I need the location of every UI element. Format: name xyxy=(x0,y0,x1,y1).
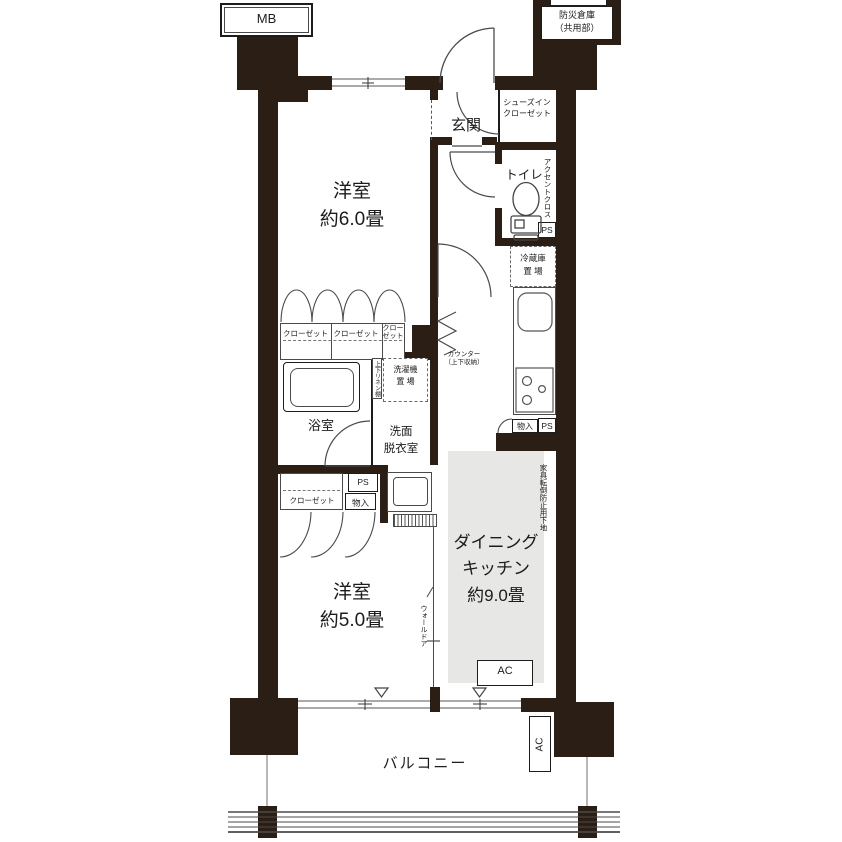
hall-dk-door xyxy=(438,244,491,297)
wall-hall-west-mid xyxy=(430,140,438,325)
window-dk xyxy=(440,701,521,708)
opening-marker-bedroom5 xyxy=(375,688,388,697)
closet-label-1: クローゼット xyxy=(281,328,330,339)
balcony-label: バルコニー xyxy=(375,752,475,773)
window-bedroom5-mark xyxy=(358,699,372,710)
wall-kitchen-bottom xyxy=(496,433,556,451)
monoire-label-center: 物入 xyxy=(345,497,376,509)
wall-balcony-left xyxy=(230,698,298,755)
toilet-icon xyxy=(511,183,541,241)
furniture-brace-label: 家具転倒防止用下地 xyxy=(538,458,549,538)
closet-label-3: クローゼット xyxy=(381,325,405,342)
vanity-bowl xyxy=(393,477,428,506)
room-label-dk: ダイニングキッチン約9.0畳 xyxy=(444,530,548,609)
window-dk-mark xyxy=(473,699,487,710)
walldoor-label: ウォールドア xyxy=(418,600,428,652)
window-bedroom6 xyxy=(332,79,405,86)
kitchen-monoire-door xyxy=(498,419,512,433)
ps-label-kitchen: PS xyxy=(538,421,556,431)
closet-doors-bedroom6 xyxy=(281,290,405,322)
monoire-label-kitchen: 物入 xyxy=(512,421,538,432)
room-label-bedroom5: 洋室約5.0畳 xyxy=(292,579,412,634)
wall-hall-west-low xyxy=(430,350,438,465)
wall-genkan-hall-l xyxy=(430,137,452,145)
rail-post-left xyxy=(258,806,277,838)
disaster-storage-label: 防災倉庫（共用部） xyxy=(541,9,613,35)
opening-marker-dk xyxy=(473,688,486,697)
floor-plan: MB 防災倉庫（共用部） 洋室約6.0畳 玄関 シューズインクローゼット トイレ… xyxy=(0,0,842,842)
room-label-bedroom6: 洋室約6.0畳 xyxy=(292,178,412,233)
closet-doors-bedroom5 xyxy=(280,512,375,557)
balcony-railing xyxy=(228,812,620,832)
toilet-door xyxy=(450,152,495,197)
walldoor-stack-hatch xyxy=(393,514,437,527)
wall-top-c xyxy=(495,76,533,90)
walldoor-track xyxy=(433,527,435,687)
ps-label-center: PS xyxy=(348,477,378,487)
window-bedroom5 xyxy=(298,701,430,708)
fridge-label: 冷蔵庫置 場 xyxy=(510,252,556,278)
rail-post-right xyxy=(578,806,597,838)
kitchen-counter xyxy=(513,287,556,415)
wall-toilet-west-a xyxy=(495,148,502,164)
washroom-label: 洗面脱衣室 xyxy=(372,424,430,459)
ac-label-dk: AC xyxy=(477,665,533,677)
wall-balcony-right xyxy=(554,702,614,757)
closet-label-2: クローゼット xyxy=(331,328,381,339)
bedroom6-door-opening-dashed xyxy=(431,100,432,140)
genkan-label: 玄関 xyxy=(436,114,496,135)
window-bedroom6-mark xyxy=(362,77,374,89)
accent-cloth-label: アクセントクロス xyxy=(542,156,553,220)
wall-disaster-step xyxy=(533,45,597,90)
counter-bifold xyxy=(438,312,456,350)
linen-shelf-label: 上下リネン棚 xyxy=(373,359,382,398)
wall-top-a xyxy=(277,76,332,90)
bath-label: 浴室 xyxy=(291,415,351,434)
shoes-closet-label: シューズインクローゼット xyxy=(498,97,556,119)
closet-shelf-dashed-lower xyxy=(283,490,340,491)
wall-toilet-bottom xyxy=(495,238,556,246)
wall-shoes-toilet xyxy=(495,142,556,150)
mb-label: MB xyxy=(220,11,313,26)
closet-label-bedroom5: クローゼット xyxy=(281,495,343,506)
ps-label-toilet: PS xyxy=(538,225,556,235)
wall-toilet-west-b xyxy=(495,208,502,239)
wall-center-post xyxy=(430,687,440,712)
wall-top-tab xyxy=(277,90,308,102)
washer-label: 洗濯機置 場 xyxy=(383,364,428,389)
wall-left xyxy=(258,88,278,702)
wall-top-b xyxy=(405,76,443,90)
bathtub-inner xyxy=(290,368,354,407)
wall-right xyxy=(556,87,576,702)
ac-label-balcony: AC xyxy=(529,716,551,772)
plan-linework xyxy=(0,0,842,842)
counter-label: カウンター（上下収納） xyxy=(438,351,490,367)
vanity xyxy=(387,472,432,512)
front-door xyxy=(440,28,494,83)
disaster-notch xyxy=(551,0,606,5)
wall-hall-west-upper xyxy=(430,90,438,100)
bathtub xyxy=(283,362,360,412)
toilet-label: トイレ xyxy=(500,164,548,183)
